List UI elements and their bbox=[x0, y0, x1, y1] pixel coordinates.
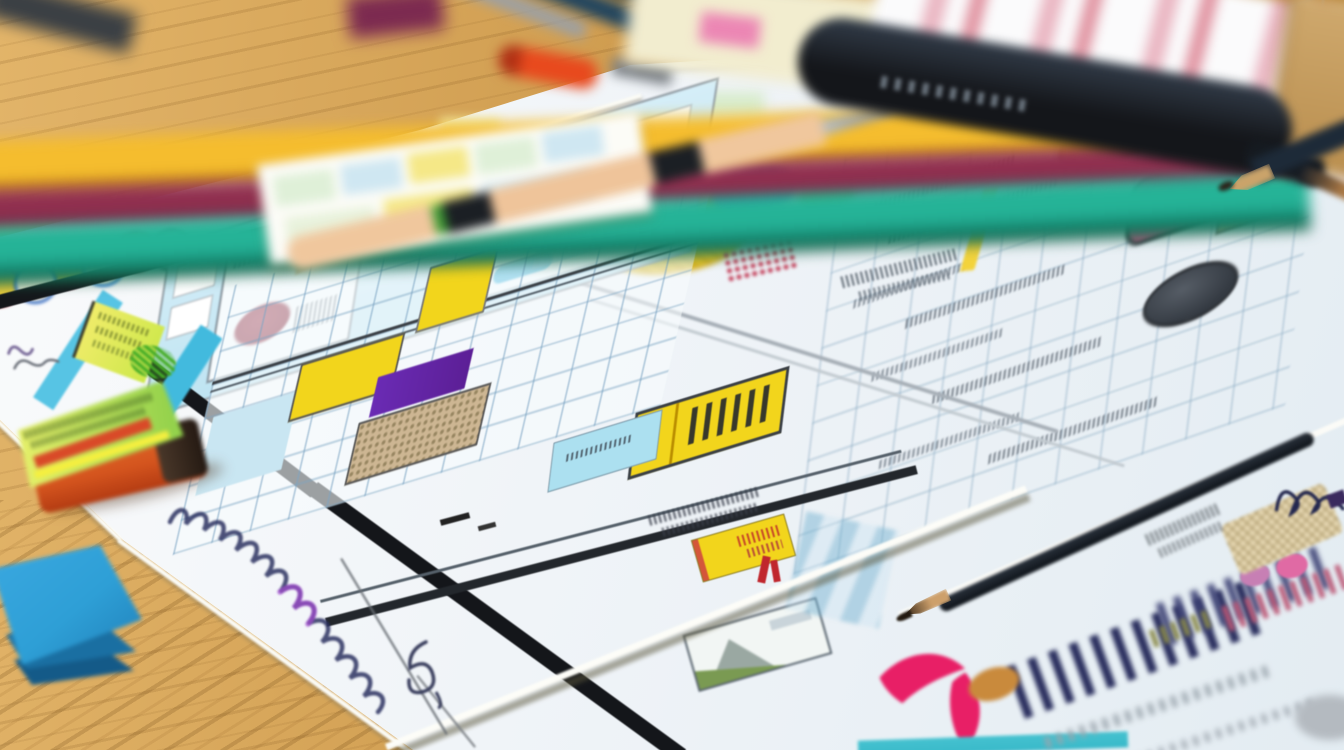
dark-oval-sketch bbox=[1139, 249, 1242, 339]
pastel-cell bbox=[541, 125, 605, 163]
cursive-sixty bbox=[392, 632, 456, 712]
sketch-text bbox=[871, 327, 1004, 381]
pastel-cell bbox=[340, 157, 404, 195]
cell-divider bbox=[669, 403, 679, 465]
pink-y-logo bbox=[862, 631, 1043, 750]
sketch-numbers bbox=[688, 384, 771, 445]
pastel-cell bbox=[273, 169, 337, 207]
blue-sticky-notes bbox=[0, 545, 142, 685]
sketch-text bbox=[879, 411, 1022, 469]
desk-scene-photo: Close-up photo of hand-drawn UI wirefram… bbox=[0, 0, 1344, 750]
sketch-text bbox=[566, 434, 634, 462]
pastel-cell bbox=[407, 146, 471, 184]
pastel-cell bbox=[474, 136, 538, 174]
